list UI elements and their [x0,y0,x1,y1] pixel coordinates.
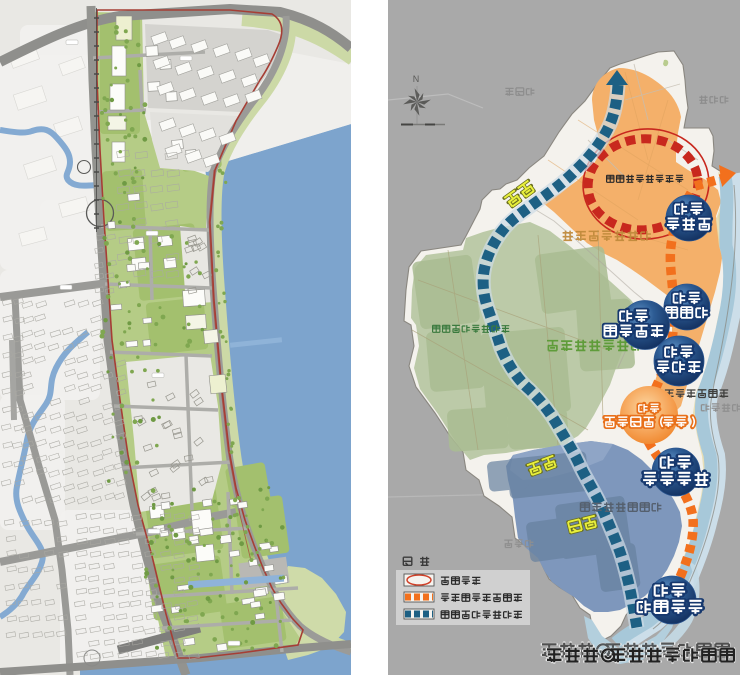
svg-text:N: N [413,74,420,84]
